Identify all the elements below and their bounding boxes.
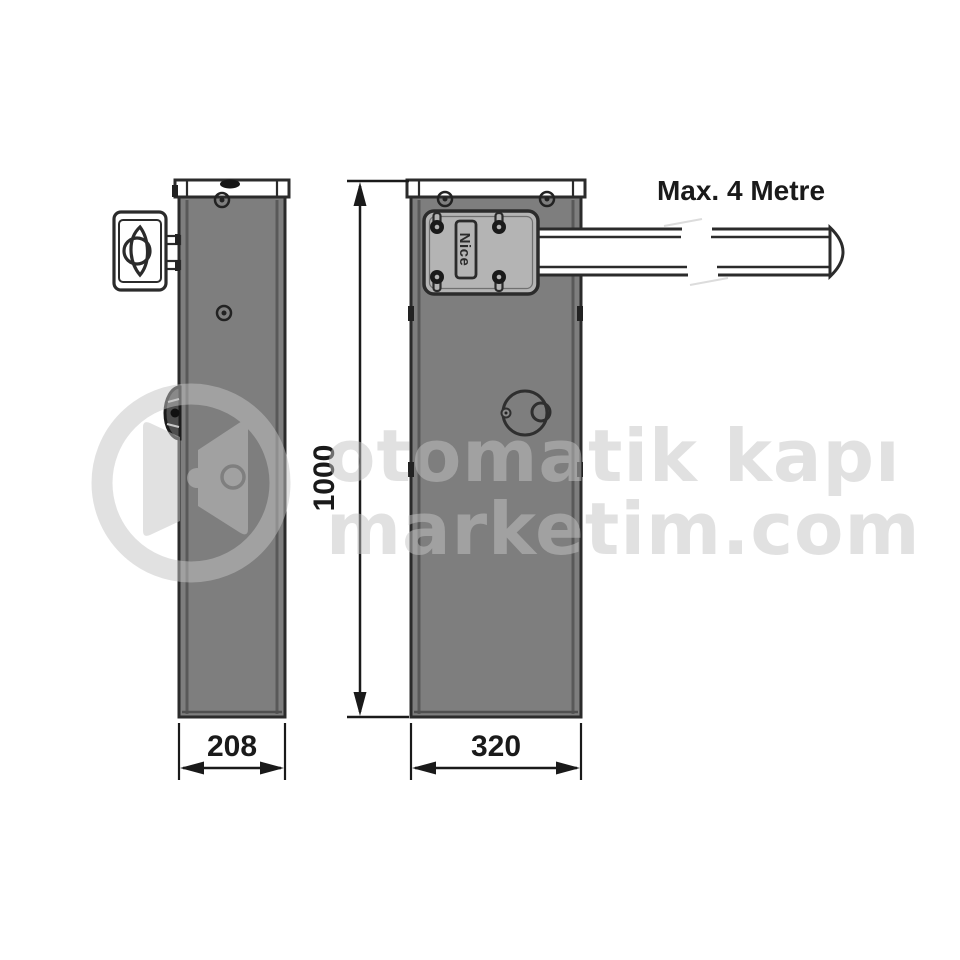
- side-shaft-knob: [165, 387, 180, 439]
- nice-plate: Nice: [424, 211, 538, 294]
- height-value: 1000: [308, 445, 341, 512]
- side-edge-nub-b: [175, 260, 180, 271]
- arm-length-label: Max. 4 Metre: [657, 175, 825, 206]
- dimension-side-width: 208: [179, 723, 285, 780]
- front-width-arrow-right: [556, 762, 580, 775]
- front-edge-nub-br: [577, 462, 583, 477]
- barrier-diagram: Nice 1000 208 320: [0, 0, 960, 960]
- side-width-arrow-left: [180, 762, 204, 775]
- side-cap-knob: [220, 180, 240, 189]
- height-arrow-down: [354, 692, 367, 716]
- side-edge-nub-top: [172, 185, 178, 197]
- side-width-value: 208: [207, 730, 257, 763]
- side-width-arrow-right: [260, 762, 284, 775]
- front-top-cap: [407, 180, 585, 197]
- height-arrow-up: [354, 182, 367, 206]
- side-cabinet-body: [179, 197, 285, 717]
- front-edge-nub-tl: [408, 306, 414, 321]
- arm-bracket-side: [114, 212, 180, 290]
- front-width-arrow-left: [412, 762, 436, 775]
- bracket-lens-cutout: [131, 227, 148, 275]
- front-edge-nub-bl: [408, 462, 414, 477]
- barrier-arm: [536, 219, 843, 285]
- dimension-front-width: 320: [411, 723, 581, 780]
- front-width-value: 320: [471, 730, 521, 763]
- diagram-canvas: Nice 1000 208 320: [0, 0, 960, 960]
- front-edge-nub-tr: [577, 306, 583, 321]
- side-edge-nub-a: [175, 234, 180, 245]
- brand-label: Nice: [456, 233, 473, 267]
- side-view: [114, 180, 289, 718]
- arm-end-cap: [830, 228, 843, 277]
- dimension-height: 1000: [308, 181, 409, 717]
